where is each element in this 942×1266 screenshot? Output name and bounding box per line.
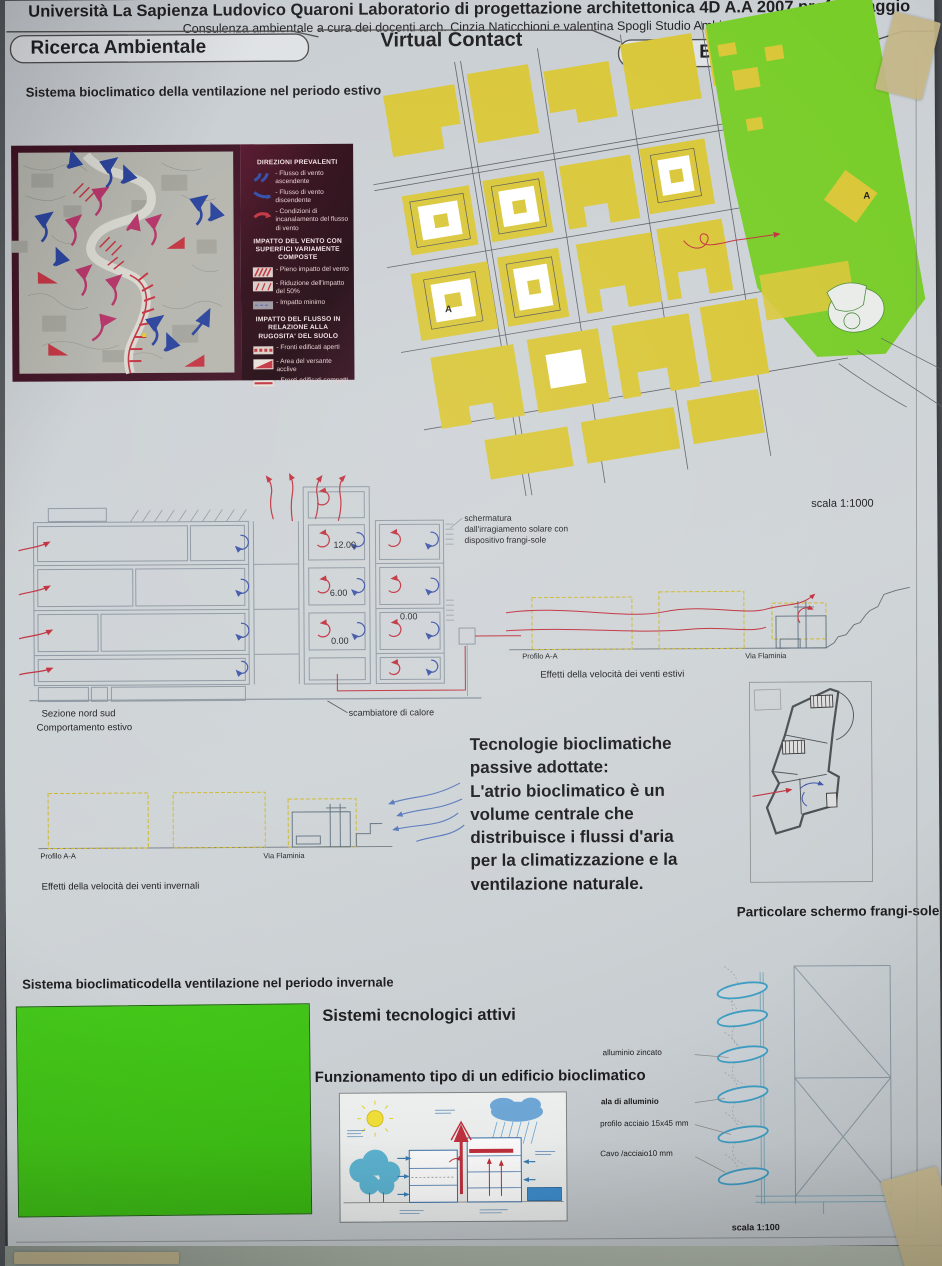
summer-section-title: Sistema bioclimatico della ventilazione … <box>26 83 382 100</box>
particolare-caption: Particolare schermo frangi-sole <box>737 903 940 919</box>
legend-item: - Area del versante acclive <box>276 358 349 375</box>
active-systems-title: Sistemi tecnologici attivi <box>322 1006 516 1026</box>
summer-effects-caption: Effetti della velocità dei venti estivi <box>540 669 684 681</box>
legend-item: - Flusso di vento discendente <box>275 189 348 206</box>
backdrop-left-strip <box>0 0 5 1266</box>
detail-label-cavo-acciaio: Cavo /acciaio10 mm <box>600 1149 673 1158</box>
schermatura-note: schermatura dall'irragiamento solare con… <box>464 512 568 546</box>
wind-descending-icon <box>252 189 272 201</box>
legend-heading-3: IMPATTO DEL FLUSSO IN RELAZIONE ALLA RUG… <box>249 316 347 341</box>
minimal-impact-icon <box>253 299 273 311</box>
level-label-6: 6.00 <box>330 588 348 598</box>
winter-via-flaminia-label: Via Flaminia <box>263 851 304 860</box>
poster-photo: Università La Sapienza Ludovico Quaroni … <box>0 0 942 1266</box>
legend-heading-1: DIREZIONI PREVALENTI <box>248 159 346 168</box>
winter-green-panel <box>16 1003 312 1217</box>
site-plan-scale: scala 1:1000 <box>811 498 873 510</box>
summer-section-drawing <box>18 468 525 729</box>
legend-item: - Flusso di vento ascendente <box>275 170 348 187</box>
winter-effects-caption: Effetti della velocità dei venti inverna… <box>42 881 200 893</box>
legend-item: - Impatto minimo <box>276 299 325 308</box>
sezione-label: Sezione nord sud <box>42 708 116 719</box>
banner-center-label: Virtual Contact <box>380 29 522 53</box>
banner-left-label: Ricerca Ambientale <box>30 37 206 60</box>
section-marker-a-left: A <box>445 304 452 315</box>
legend-item: - Condizioni di incanalamento del flusso… <box>275 208 348 233</box>
detail-label-alluminio-zincato: alluminio zincato <box>603 1048 662 1057</box>
open-fronts-icon <box>253 344 273 356</box>
legend-item: - Riduzione dell'impatto del 50% <box>276 280 349 297</box>
wind-map <box>11 144 241 381</box>
level-label-0: 0.00 <box>331 636 349 646</box>
floor-plan-drawing <box>737 673 893 896</box>
legend-heading-2: IMPATTO DEL VENTO CON SUPERFICI VARIAMEN… <box>249 238 347 263</box>
comportamento-label: Comportamento estivo <box>37 722 133 734</box>
scambiatore-label: scambiatore di calore <box>349 707 435 718</box>
legend-item: - Pieno impatto del vento <box>276 265 349 274</box>
full-impact-icon <box>253 266 273 278</box>
detail-scale-label: scala 1:100 <box>732 1222 780 1232</box>
reduced-impact-icon <box>253 280 273 292</box>
level-label-0-inner: 0.00 <box>400 611 418 621</box>
passive-technologies-text: Tecnologie bioclimatiche passive adottat… <box>470 732 678 896</box>
wind-ascending-icon <box>252 170 272 182</box>
tape-bottom-left <box>14 1252 179 1264</box>
detail-label-profilo-acciaio: profilo acciaio 15x45 mm <box>600 1119 689 1129</box>
legend-item: - Fronti edificati compatti <box>276 377 348 386</box>
level-label-12: 12.00 <box>333 540 356 550</box>
poster-sheet: Università La Sapienza Ludovico Quaroni … <box>0 0 942 1251</box>
winter-wind-profile <box>30 783 465 868</box>
summer-profile-label: Profilo A-A <box>522 651 557 660</box>
functioning-subtitle: Funzionamento tipo di un edificio biocli… <box>315 1067 646 1086</box>
wind-legend-panel: DIREZIONI PREVALENTI - Flusso di vento a… <box>240 144 354 381</box>
winter-profile-label: Profilo A-A <box>40 851 75 860</box>
site-plan-map <box>399 51 921 458</box>
summer-wind-profile <box>504 580 920 671</box>
summer-via-flaminia-label: Via Flaminia <box>745 651 786 660</box>
compact-fronts-icon <box>253 377 273 389</box>
detail-label-ala-alluminio: ala di alluminio <box>601 1097 659 1106</box>
legend-item: - Fronti edificati aperti <box>276 344 339 353</box>
section-marker-a-right: A <box>863 191 870 202</box>
slope-area-icon <box>253 358 273 370</box>
poster-bottom-border <box>16 1236 922 1243</box>
winter-section-title: Sistema bioclimaticodella ventilazione n… <box>22 974 393 991</box>
wind-channel-icon <box>252 208 272 220</box>
bioclimatic-diagram <box>339 1091 568 1222</box>
